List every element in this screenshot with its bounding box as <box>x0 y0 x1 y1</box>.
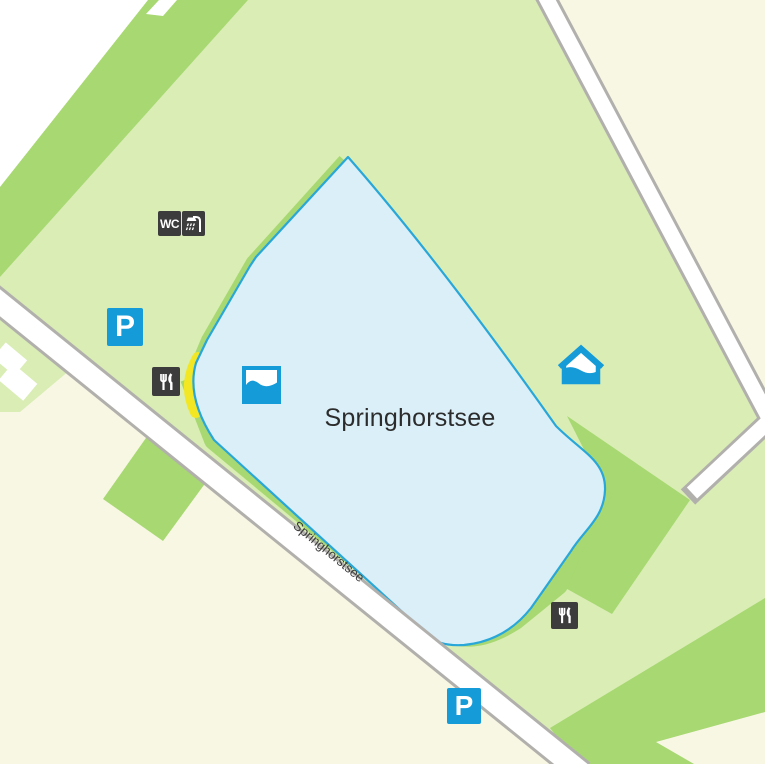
wc-icon: WC <box>158 211 181 236</box>
map-shapes <box>0 0 765 764</box>
wc-label: WC <box>160 217 179 231</box>
restaurant-marker-south <box>551 602 578 629</box>
fork-knife-icon <box>553 604 576 627</box>
parking-marker-north: P <box>107 308 143 346</box>
bathing-area-icon <box>242 366 281 404</box>
restaurant-marker-west <box>152 367 180 396</box>
wc-shower-marker: WC <box>158 211 205 236</box>
shower-icon <box>182 211 205 236</box>
fork-knife-icon <box>154 370 178 394</box>
parking-label: P <box>115 310 135 344</box>
map-canvas[interactable]: Springhorstsee Springhorstsee WC P <box>0 0 765 764</box>
parking-label: P <box>455 690 474 722</box>
bathhouse-icon <box>557 343 605 389</box>
lake-name-label: Springhorstsee <box>260 404 560 433</box>
parking-marker-south: P <box>447 688 481 724</box>
